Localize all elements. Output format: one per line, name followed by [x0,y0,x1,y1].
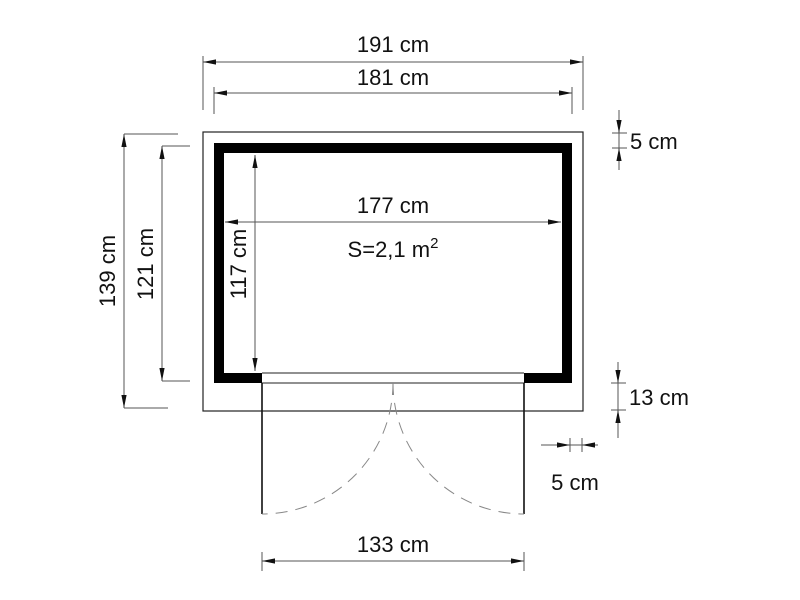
dim-door-width: 133 cm [262,532,524,571]
floor-plan-page: 191 cm 181 cm 177 cm S=2,1 m2 139 cm 121… [0,0,800,600]
arrowhead-right [511,558,524,563]
arrowhead-left [582,442,595,447]
dim-label: 117 cm [226,229,251,300]
floor-plan-drawing: 191 cm 181 cm 177 cm S=2,1 m2 139 cm 121… [0,0,800,600]
dim-label: 181 cm [357,65,429,90]
arrowhead-up [616,148,621,161]
dim-label: 139 cm [95,235,120,307]
dim-frame-depth: 121 cm [133,146,190,381]
arrowhead-down [615,370,620,383]
arrowhead-right [557,442,570,447]
arrowhead-down [616,120,621,133]
dim-label: 191 cm [357,32,429,57]
dim-frame-width: 181 cm [214,65,572,114]
dim-front-band: 13 cm [611,362,689,438]
area-label-exponent: 2 [430,235,438,252]
door-swing-left-arc [262,383,393,514]
double-doors [262,383,524,514]
dim-wall-thickness: 5 cm [612,110,678,170]
dim-label: 13 cm [629,385,689,410]
area-label: S=2,1 m2 [348,235,439,262]
area-label-base: S=2,1 m [348,237,431,262]
door-swing-right-arc [393,383,524,514]
door-opening [262,373,524,383]
arrowhead-up [615,410,620,423]
arrowhead-right [559,90,572,95]
dim-side-overhang: 5 cm [541,438,599,495]
arrowhead-left [203,59,216,64]
dim-label: 5 cm [630,129,678,154]
arrowhead-up [121,134,126,147]
arrowhead-left [214,90,227,95]
interior-floor [224,153,562,373]
arrowhead-down [159,368,164,381]
building [203,132,583,411]
arrowhead-up [159,146,164,159]
arrowhead-left [262,558,275,563]
arrowhead-down [121,395,126,408]
dim-label: 177 cm [357,193,429,218]
dim-label: 121 cm [133,228,158,300]
dim-label: 133 cm [357,532,429,557]
dim-label: 5 cm [551,470,599,495]
arrowhead-right [570,59,583,64]
